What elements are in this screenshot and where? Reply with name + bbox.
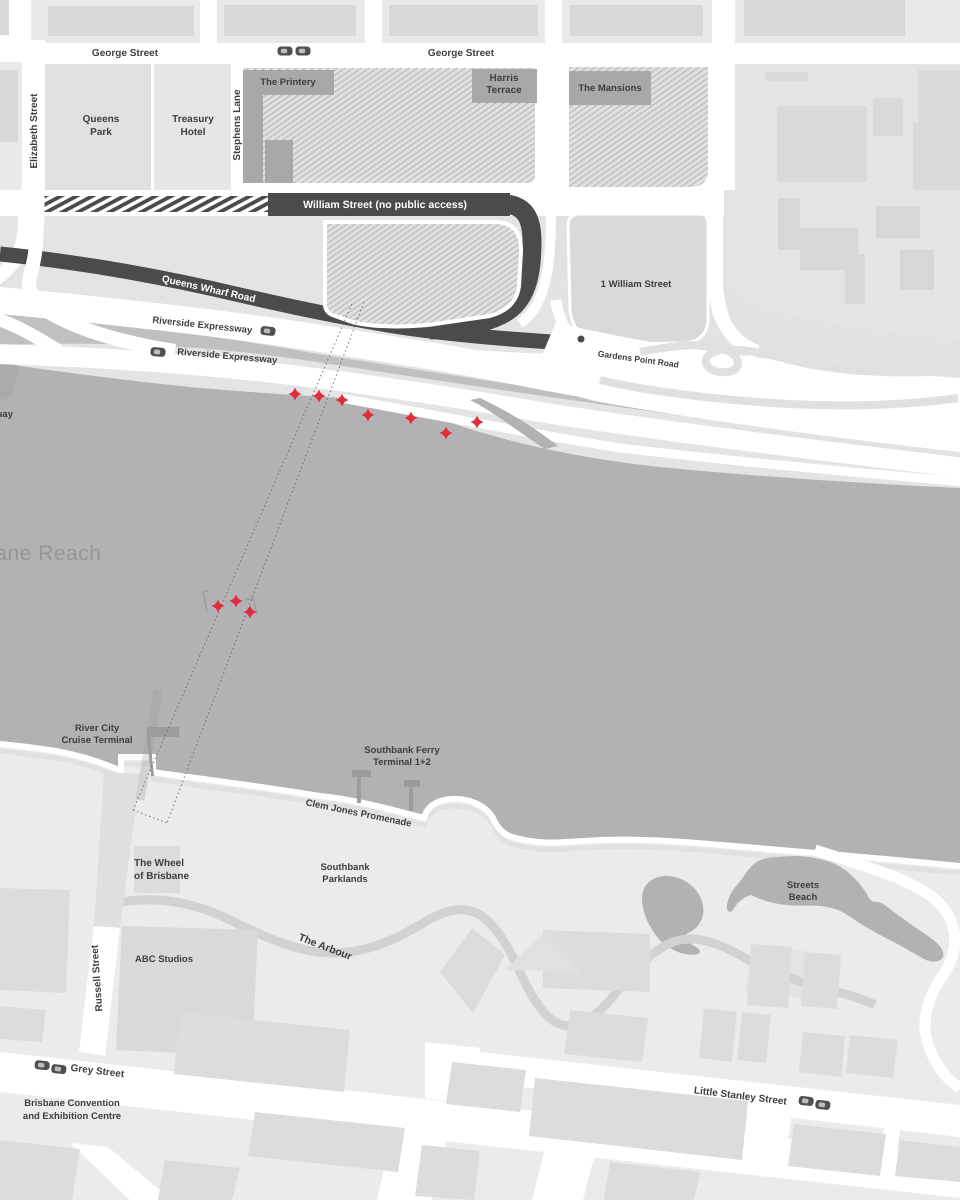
svg-text:Harris: Harris xyxy=(490,73,519,84)
svg-text:Queens: Queens xyxy=(83,114,120,125)
svg-text:ABC Studios: ABC Studios xyxy=(135,954,193,965)
svg-text:The Mansions: The Mansions xyxy=(578,83,641,94)
svg-text:George Street: George Street xyxy=(428,48,495,59)
svg-text:The Printery: The Printery xyxy=(260,77,316,88)
svg-text:Park: Park xyxy=(90,127,112,138)
svg-text:George Street: George Street xyxy=(92,48,159,59)
svg-text:Southbank: Southbank xyxy=(320,862,370,873)
svg-text:River City: River City xyxy=(75,723,120,734)
svg-text:Stephens Lane: Stephens Lane xyxy=(232,89,243,161)
svg-text:and Exhibition Centre: and Exhibition Centre xyxy=(23,1111,121,1122)
svg-text:Brisbane Reach: Brisbane Reach xyxy=(0,542,101,565)
svg-text:Streets: Streets xyxy=(787,880,819,891)
svg-text:Cruise Terminal: Cruise Terminal xyxy=(61,735,132,746)
svg-text:Elizabeth Street: Elizabeth Street xyxy=(29,93,40,169)
svg-text:Quay: Quay xyxy=(0,409,14,420)
svg-text:Terminal 1+2: Terminal 1+2 xyxy=(373,757,431,768)
svg-text:Terrace: Terrace xyxy=(486,85,522,96)
svg-text:The Wheel: The Wheel xyxy=(134,858,184,869)
svg-text:William Street (no public acce: William Street (no public access) xyxy=(303,199,467,211)
svg-text:Southbank Ferry: Southbank Ferry xyxy=(364,745,440,756)
svg-text:Hotel: Hotel xyxy=(181,127,206,138)
svg-text:1 William Street: 1 William Street xyxy=(601,279,672,290)
svg-text:Beach: Beach xyxy=(789,892,818,903)
svg-text:Treasury: Treasury xyxy=(172,114,214,125)
svg-text:of Brisbane: of Brisbane xyxy=(134,871,189,882)
svg-text:Brisbane Convention: Brisbane Convention xyxy=(24,1098,120,1109)
svg-text:Parklands: Parklands xyxy=(322,874,367,885)
